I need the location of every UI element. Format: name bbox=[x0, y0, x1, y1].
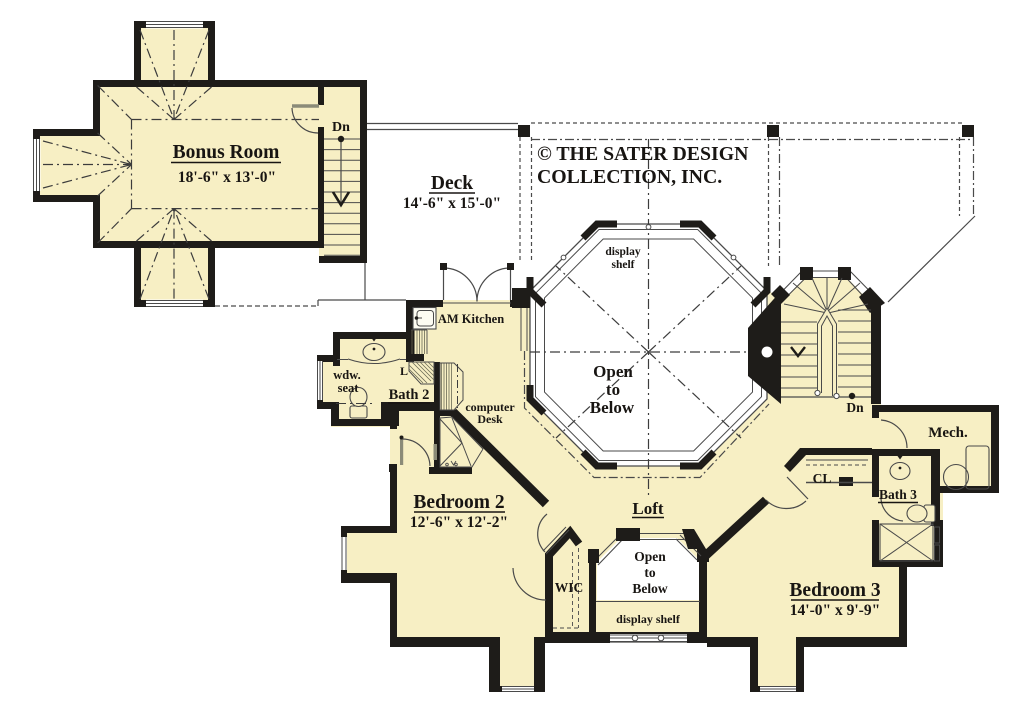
svg-text:display: display bbox=[605, 246, 640, 258]
svg-text:Bonus Room: Bonus Room bbox=[173, 142, 280, 163]
svg-text:wdw.: wdw. bbox=[333, 368, 360, 382]
svg-text:CL: CL bbox=[813, 471, 832, 486]
svg-text:Deck: Deck bbox=[431, 173, 473, 194]
svg-text:Desk: Desk bbox=[477, 412, 503, 426]
svg-text:AM Kitchen: AM Kitchen bbox=[438, 312, 504, 326]
svg-text:18'-6" x 13'-0": 18'-6" x 13'-0" bbox=[178, 169, 276, 186]
svg-text:12'-6" x 12'-2": 12'-6" x 12'-2" bbox=[410, 514, 508, 531]
svg-text:Mech.: Mech. bbox=[928, 425, 968, 441]
svg-text:Open: Open bbox=[593, 362, 633, 381]
svg-text:to: to bbox=[644, 565, 655, 580]
svg-text:Bedroom 3: Bedroom 3 bbox=[789, 580, 880, 601]
svg-text:© THE SATER DESIGN: © THE SATER DESIGN bbox=[537, 143, 749, 165]
svg-text:Dn: Dn bbox=[846, 400, 864, 415]
svg-text:Loft: Loft bbox=[632, 499, 664, 518]
svg-text:14'-6" x 15'-0": 14'-6" x 15'-0" bbox=[403, 195, 501, 212]
svg-text:Below: Below bbox=[590, 398, 635, 417]
svg-text:WIC: WIC bbox=[555, 580, 584, 595]
svg-text:Below: Below bbox=[632, 581, 667, 596]
svg-text:Bath 3: Bath 3 bbox=[879, 487, 917, 502]
svg-text:shelf: shelf bbox=[612, 259, 635, 271]
svg-text:COLLECTION, INC.: COLLECTION, INC. bbox=[537, 166, 722, 188]
svg-text:Bedroom 2: Bedroom 2 bbox=[413, 492, 504, 513]
svg-text:display shelf: display shelf bbox=[616, 612, 681, 626]
svg-text:to: to bbox=[606, 380, 620, 399]
svg-text:Open: Open bbox=[634, 549, 666, 564]
svg-text:Bath 2: Bath 2 bbox=[389, 387, 430, 403]
svg-text:seat: seat bbox=[338, 381, 360, 395]
svg-text:Dn: Dn bbox=[332, 120, 350, 135]
svg-text:L: L bbox=[400, 364, 408, 378]
svg-text:14'-0" x 9'-9": 14'-0" x 9'-9" bbox=[790, 602, 880, 619]
